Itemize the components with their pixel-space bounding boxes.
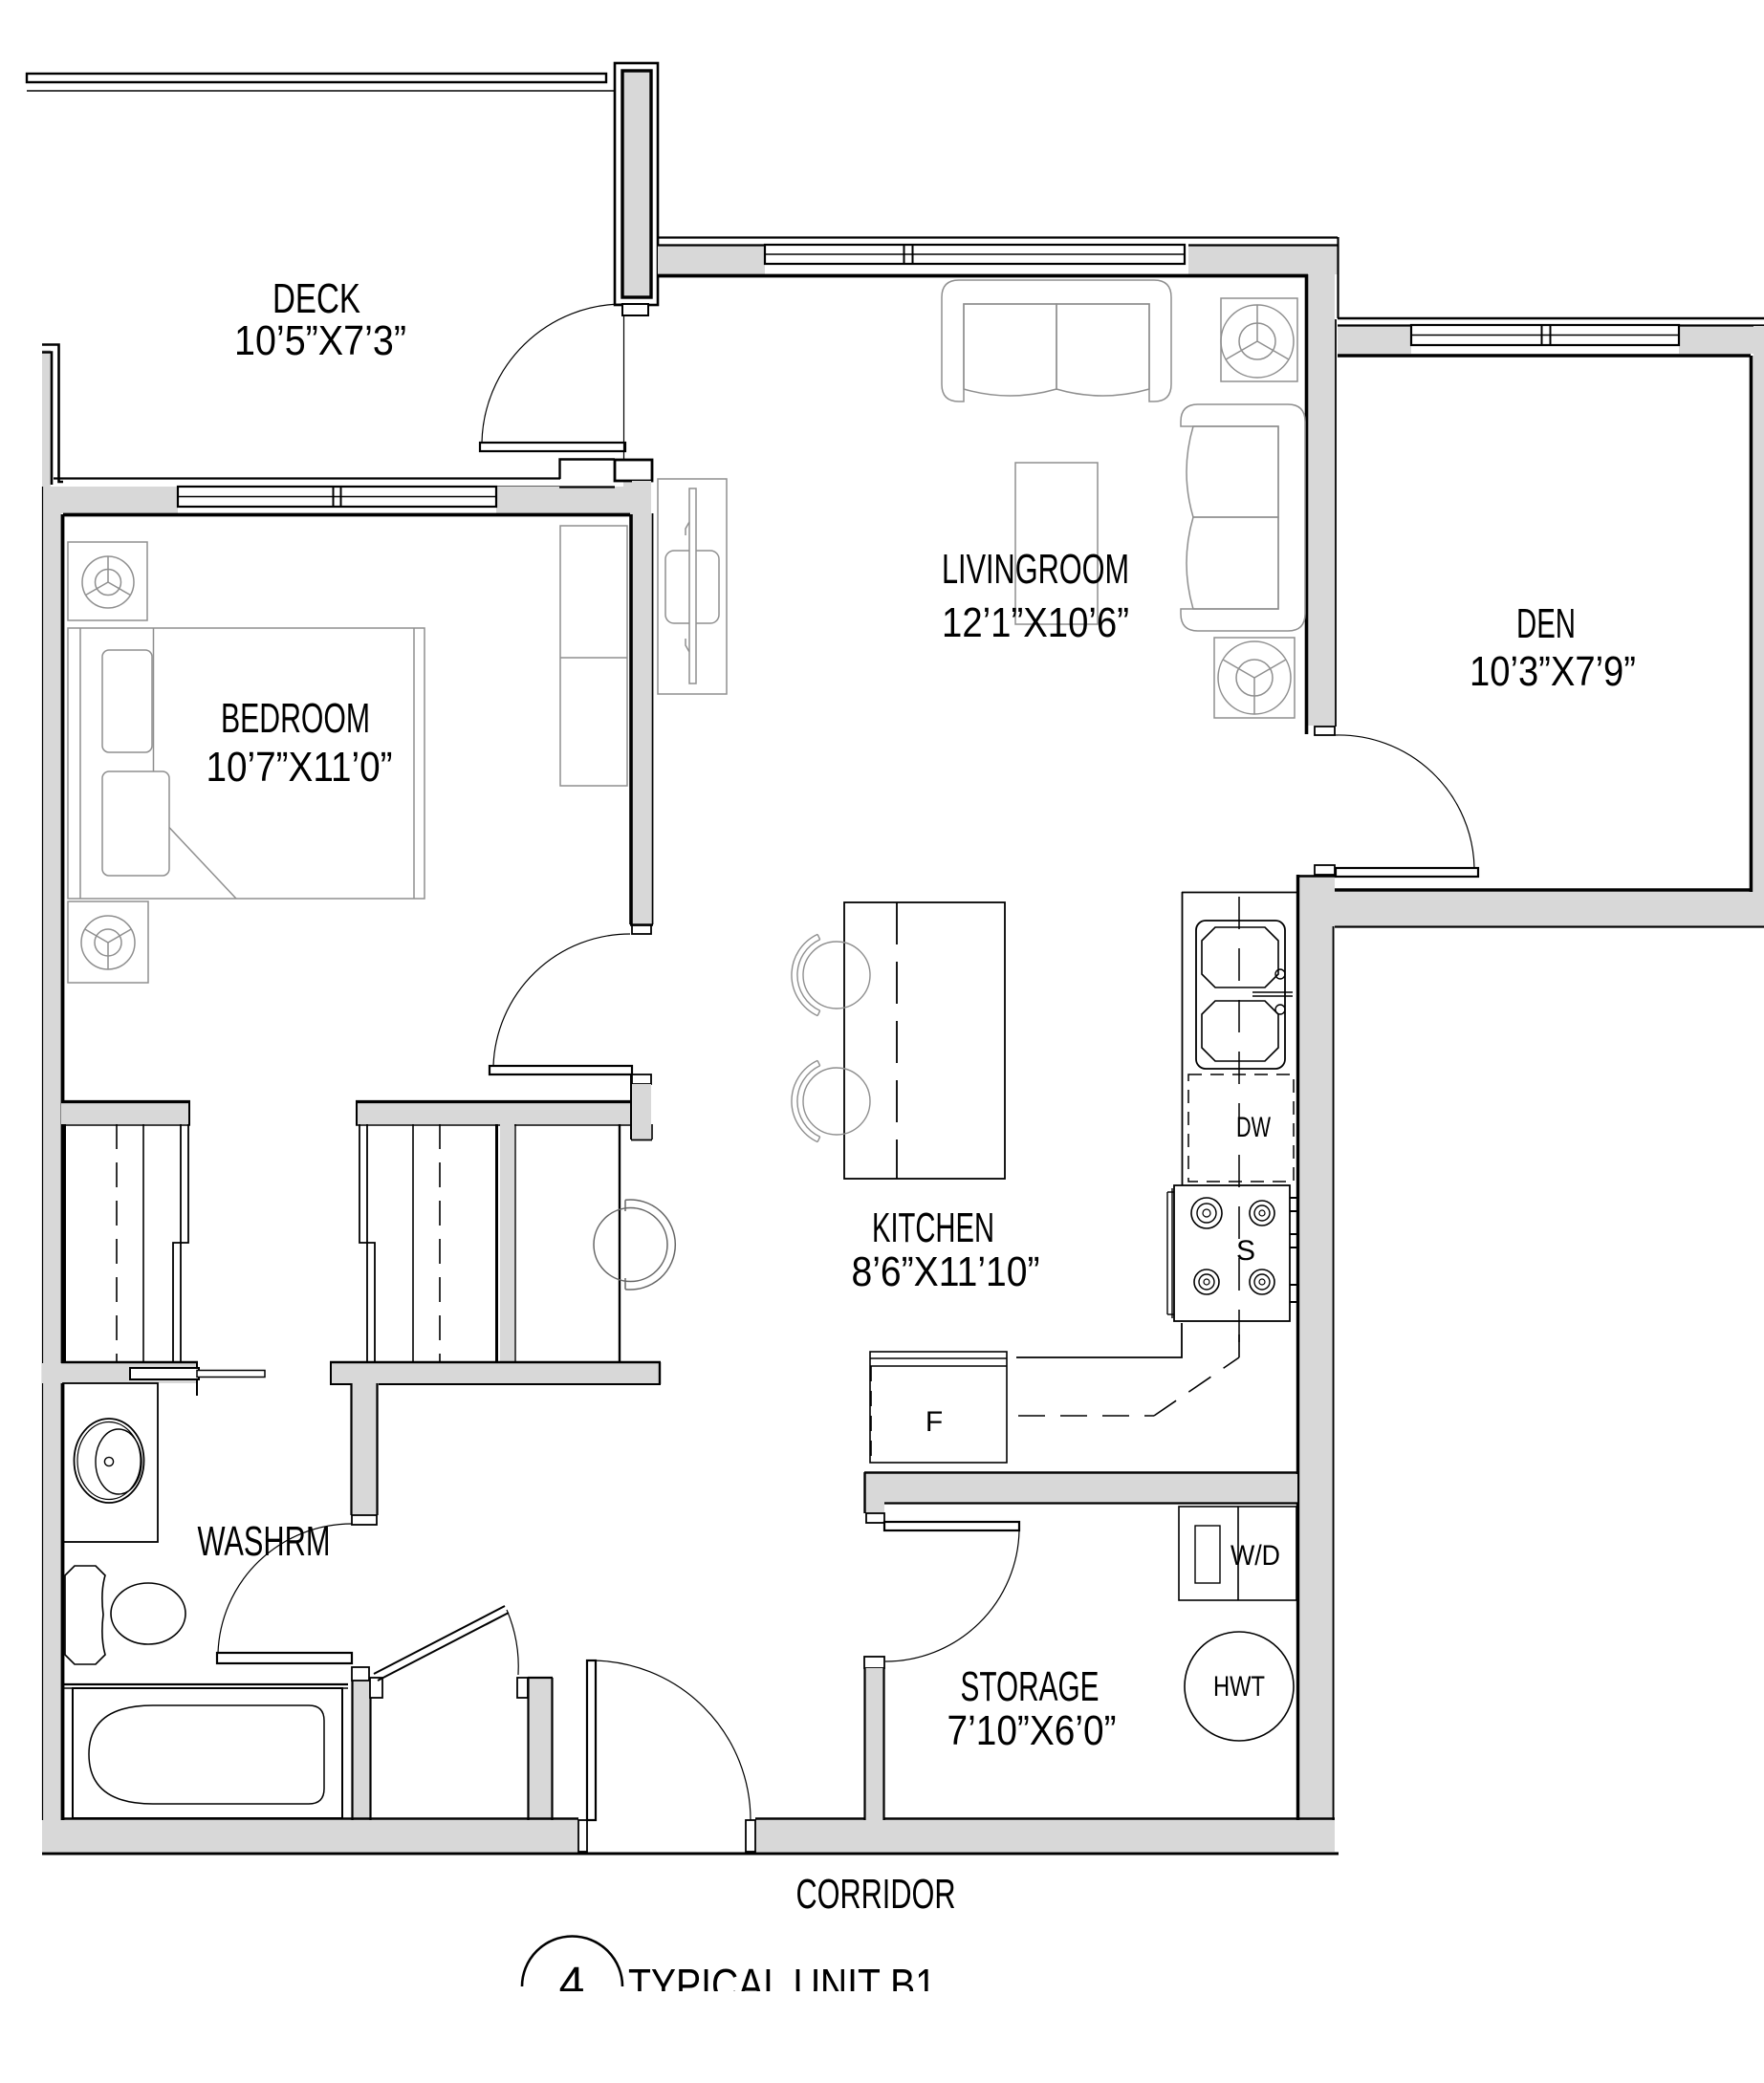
svg-text:10’5”X7’3”: 10’5”X7’3”: [234, 317, 406, 364]
svg-text:BEDROOM: BEDROOM: [221, 695, 370, 742]
svg-text:8’6”X11’10”: 8’6”X11’10”: [852, 1248, 1040, 1295]
svg-text:CORRIDOR: CORRIDOR: [796, 1871, 956, 1918]
svg-text:7’10”X6’0”: 7’10”X6’0”: [947, 1707, 1117, 1754]
svg-text:WASHRM: WASHRM: [198, 1518, 331, 1565]
svg-text:W/D: W/D: [1230, 1540, 1280, 1572]
svg-text:12’1”X10’6”: 12’1”X10’6”: [942, 599, 1129, 646]
svg-text:STORAGE: STORAGE: [961, 1663, 1100, 1710]
svg-text:KITCHEN: KITCHEN: [872, 1204, 994, 1251]
svg-text:DECK: DECK: [272, 275, 360, 322]
svg-text:HWT: HWT: [1213, 1671, 1265, 1703]
svg-text:F: F: [926, 1406, 943, 1438]
svg-text:DW: DW: [1236, 1112, 1271, 1143]
svg-text:10’7”X11’0”: 10’7”X11’0”: [207, 744, 393, 791]
svg-text:LIVINGROOM: LIVINGROOM: [942, 546, 1129, 593]
svg-text:10’3”X7’9”: 10’3”X7’9”: [1470, 648, 1636, 695]
svg-text:DEN: DEN: [1516, 600, 1576, 647]
svg-text:S: S: [1236, 1235, 1255, 1267]
